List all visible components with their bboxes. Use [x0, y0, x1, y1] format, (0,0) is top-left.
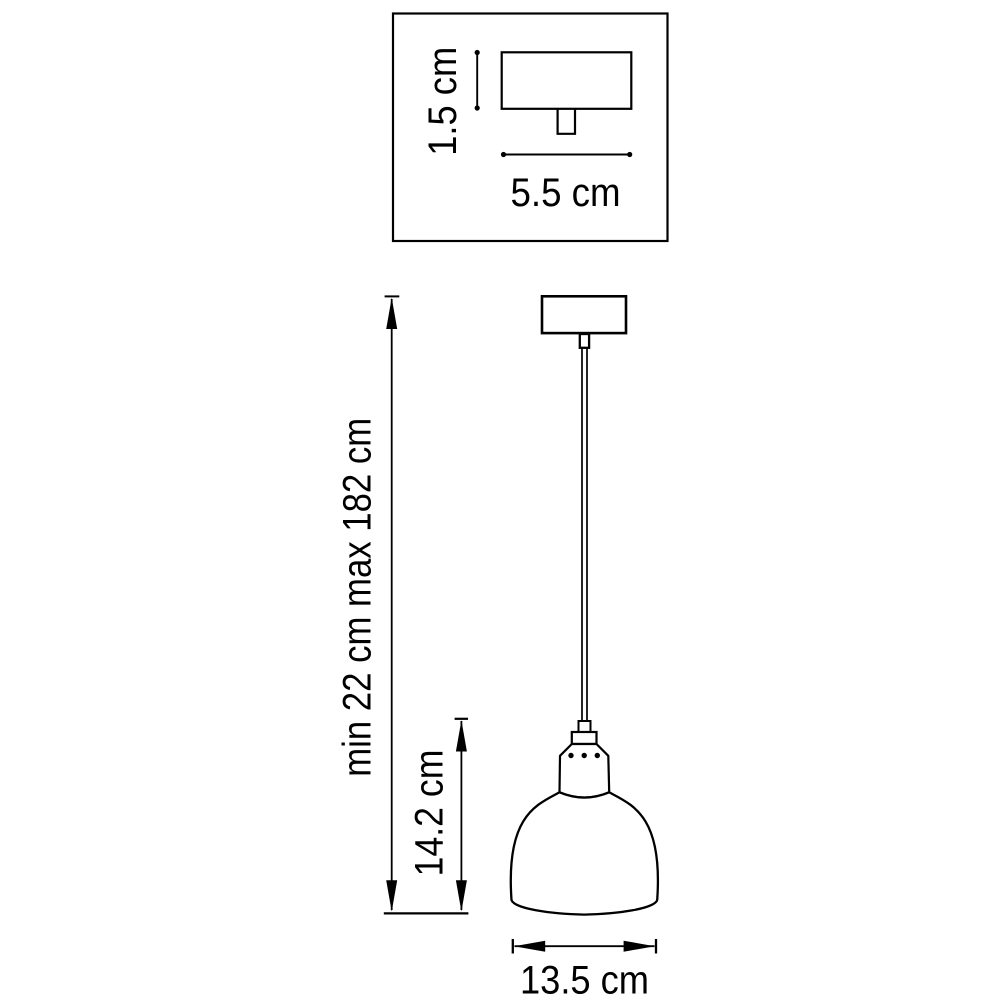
svg-text:5.5 cm: 5.5 cm [511, 171, 621, 215]
svg-text:13.5 cm: 13.5 cm [520, 959, 649, 1001]
svg-text:14.2 cm: 14.2 cm [408, 750, 452, 877]
svg-text:1.5 cm: 1.5 cm [421, 47, 465, 156]
svg-text:min 22 cm max 182 cm: min 22 cm max 182 cm [336, 418, 380, 777]
